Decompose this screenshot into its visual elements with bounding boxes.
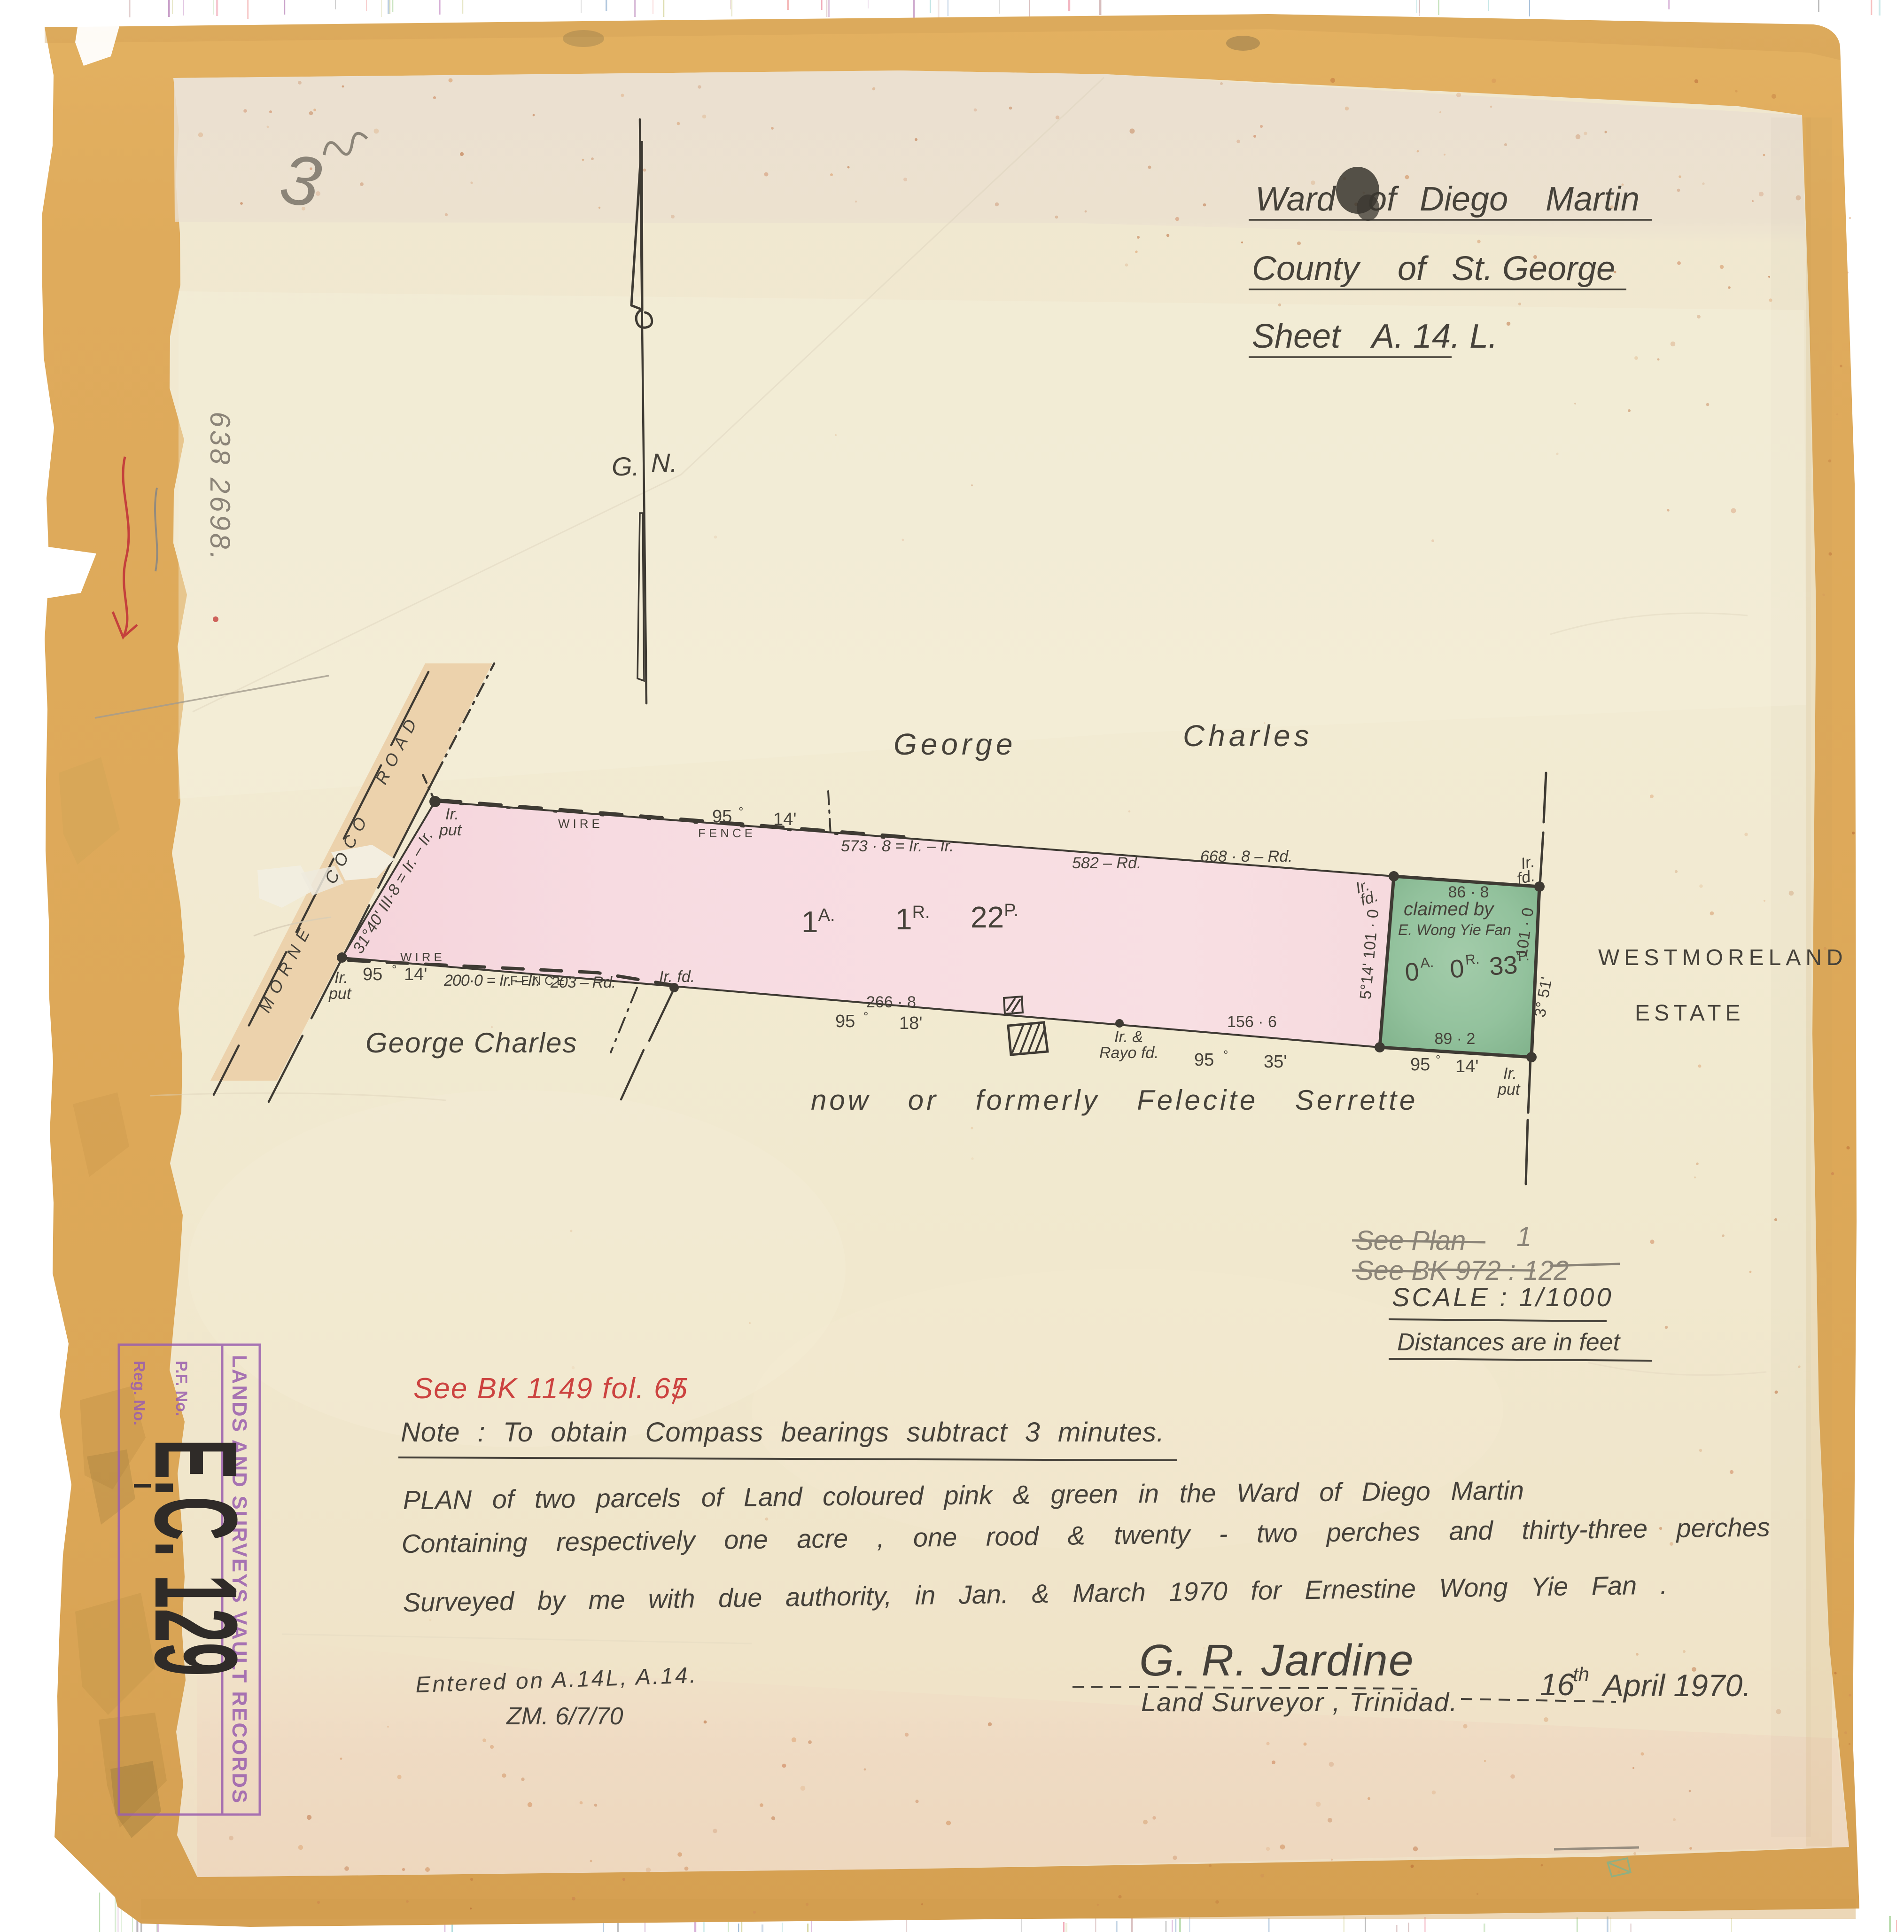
svg-text:N.: N.	[651, 448, 677, 477]
svg-text:Sheet: Sheet	[1252, 318, 1342, 355]
svg-text:SCALE : 1/1000: SCALE : 1/1000	[1392, 1282, 1614, 1312]
svg-text:put: put	[328, 985, 352, 1003]
svg-text:George: George	[894, 727, 1016, 761]
svg-text:R.: R.	[1465, 951, 1480, 968]
svg-text:Martin: Martin	[1546, 180, 1640, 218]
svg-text:668 · 8 – Rd.: 668 · 8 – Rd.	[1200, 848, 1293, 865]
svg-text:°: °	[738, 804, 743, 818]
svg-text:1: 1	[1516, 1222, 1531, 1252]
svg-text:°: °	[392, 962, 396, 976]
svg-text:Ir. fd.: Ir. fd.	[659, 968, 695, 986]
svg-text:Diego: Diego	[1420, 180, 1508, 218]
svg-text:fd.: fd.	[1515, 867, 1537, 888]
svg-text:200·0 = Ir. – Ir.: 200·0 = Ir. – Ir.	[443, 972, 540, 989]
svg-text:ZM. 6/7/70: ZM. 6/7/70	[505, 1703, 623, 1730]
svg-text:claimed by: claimed by	[1404, 899, 1495, 919]
svg-text:FENCE: FENCE	[698, 826, 756, 840]
svg-text:April 1970.: April 1970.	[1601, 1668, 1751, 1703]
svg-text:89 · 2: 89 · 2	[1435, 1030, 1476, 1048]
svg-text:County: County	[1252, 250, 1361, 288]
svg-text:582 – Rd.: 582 – Rd.	[1072, 854, 1141, 872]
svg-text:now or formerly Felecite Serre: now or formerly Felecite Serrette	[811, 1084, 1418, 1116]
svg-text:638 2698.: 638 2698.	[204, 412, 236, 562]
svg-text:35': 35'	[1264, 1052, 1287, 1072]
svg-text:156 · 6: 156 · 6	[1227, 1013, 1277, 1031]
svg-text:Ir.: Ir.	[445, 805, 459, 823]
svg-text:G.: G.	[612, 452, 639, 481]
svg-text:95: 95	[1194, 1050, 1214, 1070]
svg-text:203 – Rd.: 203 – Rd.	[550, 974, 615, 991]
svg-text:95: 95	[712, 807, 732, 826]
svg-text:Charles: Charles	[1183, 719, 1313, 753]
svg-text:0: 0	[1449, 954, 1465, 983]
svg-text:Ir. &: Ir. &	[1114, 1028, 1143, 1046]
svg-text:of: of	[1398, 250, 1429, 288]
svg-text:Ir.: Ir.	[1503, 1065, 1517, 1083]
svg-text:266 · 8: 266 · 8	[866, 993, 916, 1011]
svg-text:See BK 1149 fol. 65: See BK 1149 fol. 65	[413, 1372, 688, 1405]
svg-text:WESTMORELAND: WESTMORELAND	[1598, 945, 1848, 970]
svg-text:A.: A.	[1420, 955, 1434, 971]
svg-text:14': 14'	[1455, 1057, 1479, 1076]
svg-text:14': 14'	[773, 810, 797, 829]
svg-text:th: th	[1573, 1663, 1589, 1685]
svg-text:WIRE: WIRE	[400, 950, 445, 964]
svg-text:put: put	[1497, 1081, 1521, 1098]
svg-text:°: °	[1223, 1048, 1228, 1062]
svg-text:95: 95	[835, 1012, 855, 1031]
svg-text:Land Surveyor , Trinidad.: Land Surveyor , Trinidad.	[1141, 1687, 1458, 1717]
svg-text:Rayo fd.: Rayo fd.	[1099, 1044, 1159, 1062]
svg-text:Ir.: Ir.	[334, 969, 348, 987]
svg-text:G. R. Jardine: G. R. Jardine	[1139, 1636, 1414, 1685]
svg-text:WIRE: WIRE	[558, 817, 603, 831]
svg-text:°: °	[1436, 1052, 1440, 1067]
svg-text:°: °	[863, 1009, 868, 1023]
svg-text:Note : To obtain Compass bea: Note : To obtain Compass bearings subtra…	[401, 1417, 1165, 1448]
svg-text:14': 14'	[404, 965, 427, 984]
svg-text:E. Wong Yie Fan: E. Wong Yie Fan	[1398, 921, 1511, 938]
svg-text:P.F. No.: P.F. No.	[172, 1361, 190, 1416]
svg-text:Reg. No.: Reg. No.	[130, 1361, 148, 1426]
svg-text:St. George: St. George	[1452, 250, 1615, 288]
svg-text:A. 14. L.: A. 14. L.	[1370, 318, 1498, 355]
svg-text:0: 0	[1404, 958, 1420, 987]
svg-text:ESTATE: ESTATE	[1635, 1001, 1745, 1026]
svg-text:95: 95	[1410, 1055, 1430, 1075]
svg-text:573 · 8 = Ir. – Ir.: 573 · 8 = Ir. – Ir.	[841, 837, 954, 855]
svg-text:95: 95	[363, 965, 382, 984]
svg-text:16: 16	[1540, 1667, 1575, 1702]
svg-text:E.C. 129: E.C. 129	[130, 1439, 261, 1676]
svg-text:18': 18'	[899, 1013, 923, 1033]
svg-text:George Charles: George Charles	[365, 1027, 578, 1059]
svg-text:put: put	[439, 821, 462, 839]
svg-text:Ward: Ward	[1255, 180, 1337, 218]
svg-text:Distances are in feet: Distances are in feet	[1397, 1329, 1621, 1356]
